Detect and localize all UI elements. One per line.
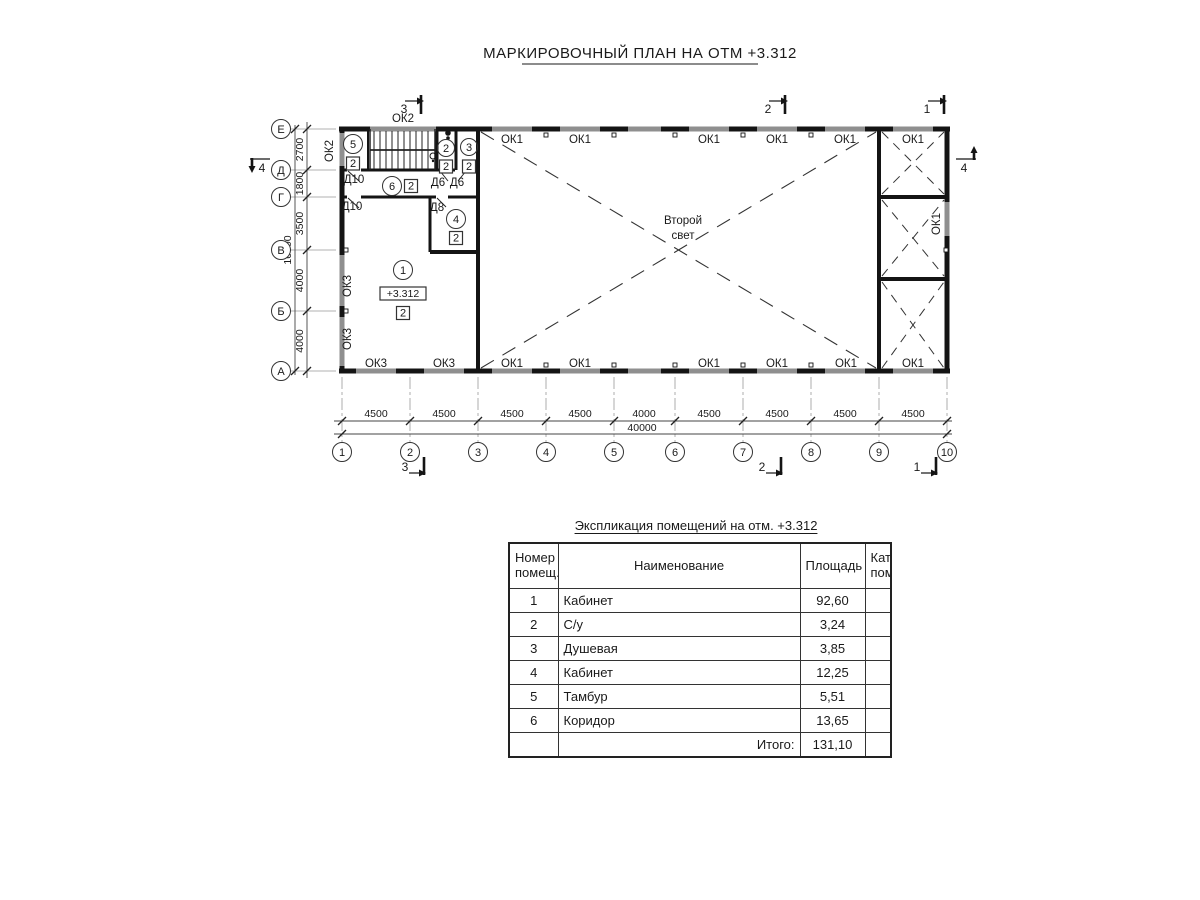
window-label-ok1: ОК1 — [569, 134, 591, 146]
axis-5: 5 — [611, 447, 617, 459]
window-label-ok3: ОК3 — [342, 328, 354, 350]
second-light-label-line1: Второй — [664, 215, 702, 227]
cell-empty — [509, 733, 558, 757]
axis-D: Д — [277, 165, 285, 177]
dim-total-40000: 40000 — [627, 422, 656, 434]
axis-10: 10 — [941, 447, 953, 459]
section-mark-1-top: 1 — [924, 102, 931, 116]
dim-1-2: 4500 — [364, 408, 388, 420]
door-label-d10: Д10 — [344, 174, 365, 186]
axis-1: 1 — [339, 447, 345, 459]
cell-room-name: Коридор — [558, 709, 800, 733]
window-label-ok3: ОК3 — [342, 275, 354, 297]
door-label-d10: Д10 — [342, 201, 363, 213]
window-label-ok1: ОК1 — [766, 134, 788, 146]
room-4-category: 2 — [453, 233, 459, 245]
section-mark-2-bottom: 2 — [759, 460, 766, 474]
table-row: 2 С/у 3,24 — [509, 613, 891, 637]
cell-room-area: 12,25 — [800, 661, 865, 685]
dim-5-6: 4000 — [632, 408, 656, 420]
room-6-category: 2 — [408, 181, 414, 193]
room-2-category: 2 — [443, 161, 449, 173]
axis-4: 4 — [543, 447, 549, 459]
room-5-category: 2 — [350, 158, 356, 170]
dim-g-v: 3500 — [294, 212, 306, 236]
axis-7: 7 — [740, 447, 746, 459]
axis-9: 9 — [876, 447, 882, 459]
cell-room-number: 6 — [509, 709, 558, 733]
room-5-number: 5 — [350, 139, 356, 151]
room-schedule-title: Экспликация помещений на отм. +3.312 — [520, 518, 872, 533]
cell-room-name: Тамбур — [558, 685, 800, 709]
cell-room-number: 3 — [509, 637, 558, 661]
axis-E: Е — [277, 124, 284, 136]
cell-room-area: 3,24 — [800, 613, 865, 637]
window-label-ok1: ОК1 — [835, 358, 857, 370]
dim-8-9: 4500 — [833, 408, 857, 420]
cell-room-category — [865, 637, 891, 661]
cell-room-area: 3,85 — [800, 637, 865, 661]
dimension-ticks — [291, 125, 951, 438]
room-1-category: 2 — [400, 308, 406, 320]
table-row: 6 Коридор 13,65 — [509, 709, 891, 733]
dim-6-7: 4500 — [697, 408, 721, 420]
room-2-number: 2 — [443, 143, 449, 155]
header-category: Кат. пом. — [865, 543, 891, 589]
section-mark-4-left: 4 — [259, 161, 266, 175]
header-room-number: Номер помещ. — [509, 543, 558, 589]
cell-room-number: 5 — [509, 685, 558, 709]
door-label-d6: Д6 — [450, 177, 464, 189]
dim-d-g: 1800 — [294, 172, 306, 196]
header-category-line1: Кат. — [871, 550, 892, 565]
header-area: Площадь — [800, 543, 865, 589]
cell-room-name: Кабинет — [558, 589, 800, 613]
axis-bubble-numbers: 1 2 3 4 5 6 7 8 9 10 — [339, 447, 953, 459]
dim-3-4: 4500 — [500, 408, 524, 420]
room-schedule-table: Номер помещ. Наименование Площадь Кат. п… — [508, 542, 892, 758]
window-labels: ОК2 ОК1 ОК1 ОК1 ОК1 ОК1 ОК1 ОК3 ОК3 ОК1 … — [324, 113, 943, 370]
window-label-ok2: ОК2 — [324, 140, 336, 162]
table-row: 1 Кабинет 92,60 — [509, 589, 891, 613]
cell-room-category — [865, 589, 891, 613]
door-labels: Д10 Д10 Д6 Д6 Д8 — [342, 174, 464, 214]
walls — [339, 127, 950, 374]
total-area: 131,10 — [800, 733, 865, 757]
elevation-mark: +3.312 — [387, 288, 420, 300]
cell-room-category — [865, 613, 891, 637]
window-label-ok1: ОК1 — [501, 358, 523, 370]
axis-3: 3 — [475, 447, 481, 459]
window-label-ok3: ОК3 — [433, 358, 455, 370]
header-room-number-line2: помещ. — [515, 565, 558, 580]
dim-4-5: 4500 — [568, 408, 592, 420]
right-bay-crosses — [882, 132, 944, 368]
cell-room-name: Кабинет — [558, 661, 800, 685]
window-label-ok1: ОК1 — [902, 358, 924, 370]
sink-icon — [432, 160, 434, 162]
cell-room-category — [865, 661, 891, 685]
door-label-d8: Д8 — [430, 202, 444, 214]
table-header-row: Номер помещ. Наименование Площадь Кат. п… — [509, 543, 891, 589]
drawing-sheet: МАРКИРОВОЧНЫЙ ПЛАН НА ОТМ +3.312 — [0, 0, 1200, 900]
axis-A: А — [277, 366, 285, 378]
dim-v-b: 4000 — [294, 269, 306, 293]
table-total-row: Итого: 131,10 — [509, 733, 891, 757]
drawing-title: МАРКИРОВОЧНЫЙ ПЛАН НА ОТМ +3.312 — [483, 44, 797, 62]
window-label-ok1: ОК1 — [501, 134, 523, 146]
door-label-d6: Д6 — [431, 177, 445, 189]
section-mark-3-bottom: 3 — [402, 460, 409, 474]
section-mark-4-right: 4 — [961, 161, 968, 175]
window-label-ok3: ОК3 — [365, 358, 387, 370]
dim-b-a: 4000 — [294, 329, 306, 353]
room-6-number: 6 — [389, 181, 395, 193]
room-3-category: 2 — [466, 161, 472, 173]
cell-room-number: 1 — [509, 589, 558, 613]
cell-room-area: 5,51 — [800, 685, 865, 709]
dim-e-d: 2700 — [294, 138, 306, 162]
axis-B: Б — [277, 306, 284, 318]
cell-room-number: 4 — [509, 661, 558, 685]
axis-V: В — [277, 245, 284, 257]
axis-8: 8 — [808, 447, 814, 459]
table-row: 5 Тамбур 5,51 — [509, 685, 891, 709]
cell-empty — [865, 733, 891, 757]
section-mark-1-bottom: 1 — [914, 460, 921, 474]
window-label-ok1: ОК1 — [698, 134, 720, 146]
cell-room-name: С/у — [558, 613, 800, 637]
window-label-ok1: ОК1 — [569, 358, 591, 370]
total-label: Итого: — [558, 733, 800, 757]
room-3-number: 3 — [466, 142, 472, 154]
window-label-ok1: ОК1 — [931, 213, 943, 235]
header-room-number-line1: Номер — [515, 550, 555, 565]
window-label-ok1: ОК1 — [834, 134, 856, 146]
staircase — [370, 129, 435, 170]
table-row: 4 Кабинет 12,25 — [509, 661, 891, 685]
section-mark-3-top: 3 — [401, 102, 408, 116]
window-label-ok1: ОК1 — [902, 134, 924, 146]
room-4-number: 4 — [453, 214, 459, 226]
cell-room-area: 92,60 — [800, 589, 865, 613]
dim-2-3: 4500 — [432, 408, 456, 420]
window-label-ok1: ОК1 — [766, 358, 788, 370]
floor-plan: МАРКИРОВОЧНЫЙ ПЛАН НА ОТМ +3.312 — [0, 0, 1200, 512]
toilet-icon — [445, 130, 451, 136]
room-schedule: Экспликация помещений на отм. +3.312 Ном… — [508, 518, 890, 758]
axis-2: 2 — [407, 447, 413, 459]
cell-room-area: 13,65 — [800, 709, 865, 733]
axis-6: 6 — [672, 447, 678, 459]
second-light-cross — [481, 132, 876, 368]
section-mark-2-top: 2 — [765, 102, 772, 116]
axis-bubbles-horizontal — [333, 443, 957, 462]
dim-7-8: 4500 — [765, 408, 789, 420]
axis-G: Г — [278, 192, 284, 204]
cell-room-category — [865, 709, 891, 733]
header-category-line2: пом. — [871, 565, 892, 580]
dim-9-10: 4500 — [901, 408, 925, 420]
cell-room-number: 2 — [509, 613, 558, 637]
cell-room-category — [865, 685, 891, 709]
cell-room-name: Душевая — [558, 637, 800, 661]
room-1-number: 1 — [400, 265, 406, 277]
window-label-ok1: ОК1 — [698, 358, 720, 370]
second-light-label-line2: свет — [671, 230, 695, 242]
table-row: 3 Душевая 3,85 — [509, 637, 891, 661]
header-name: Наименование — [558, 543, 800, 589]
